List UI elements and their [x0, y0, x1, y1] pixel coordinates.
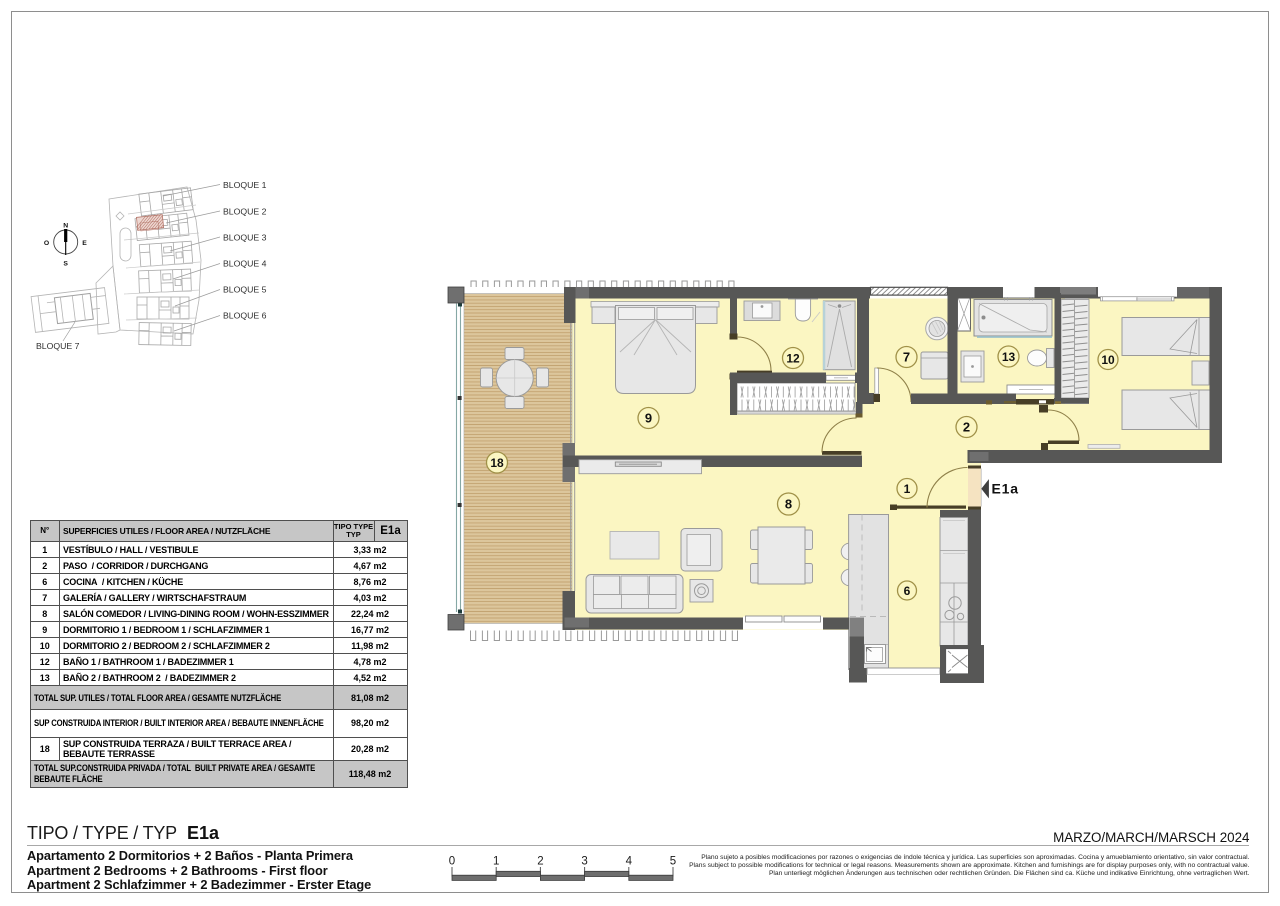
svg-text:1: 1 — [904, 482, 911, 496]
svg-text:4: 4 — [626, 856, 633, 868]
svg-text:N: N — [63, 223, 68, 230]
svg-text:6: 6 — [904, 584, 911, 598]
svg-text:E1a: E1a — [992, 481, 1019, 497]
svg-text:2: 2 — [963, 420, 970, 435]
svg-text:BLOQUE 7: BLOQUE 7 — [36, 341, 80, 351]
svg-text:O: O — [44, 240, 49, 247]
svg-text:3: 3 — [581, 856, 587, 868]
svg-text:7: 7 — [903, 350, 910, 365]
svg-text:BLOQUE 6: BLOQUE 6 — [223, 311, 267, 321]
svg-text:18: 18 — [490, 456, 504, 470]
svg-text:BLOQUE 1: BLOQUE 1 — [223, 180, 267, 190]
svg-text:8: 8 — [785, 497, 792, 512]
svg-text:BLOQUE 5: BLOQUE 5 — [223, 285, 267, 295]
svg-text:5: 5 — [670, 856, 676, 868]
svg-text:1: 1 — [493, 856, 499, 868]
svg-text:9: 9 — [645, 411, 652, 426]
svg-text:12: 12 — [786, 351, 800, 365]
svg-text:2: 2 — [537, 856, 543, 868]
svg-text:0: 0 — [449, 856, 455, 868]
svg-text:S: S — [63, 261, 68, 268]
svg-text:13: 13 — [1002, 350, 1016, 364]
svg-text:BLOQUE 3: BLOQUE 3 — [223, 233, 267, 243]
svg-text:BLOQUE 4: BLOQUE 4 — [223, 259, 267, 269]
svg-text:E: E — [82, 240, 87, 247]
svg-text:BLOQUE 2: BLOQUE 2 — [223, 207, 267, 217]
svg-text:10: 10 — [1101, 353, 1115, 367]
